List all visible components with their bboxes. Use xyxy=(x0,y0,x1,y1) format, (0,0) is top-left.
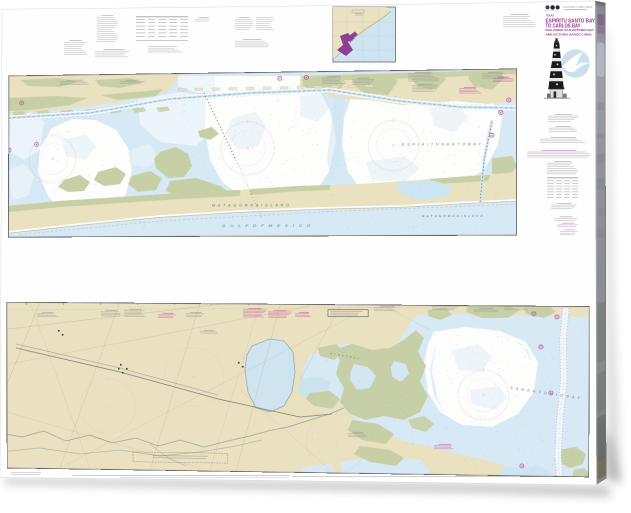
svg-text:INCLUDING SAN ANTONIO BAY: INCLUDING SAN ANTONIO BAY xyxy=(546,28,595,32)
svg-text:TEXAS: TEXAS xyxy=(546,15,554,18)
svg-text:AND VICTORIA BARGE CANAL: AND VICTORIA BARGE CANAL xyxy=(546,32,593,36)
svg-text:NAUTICAL CHART 11315: NAUTICAL CHART 11315 xyxy=(564,5,593,9)
